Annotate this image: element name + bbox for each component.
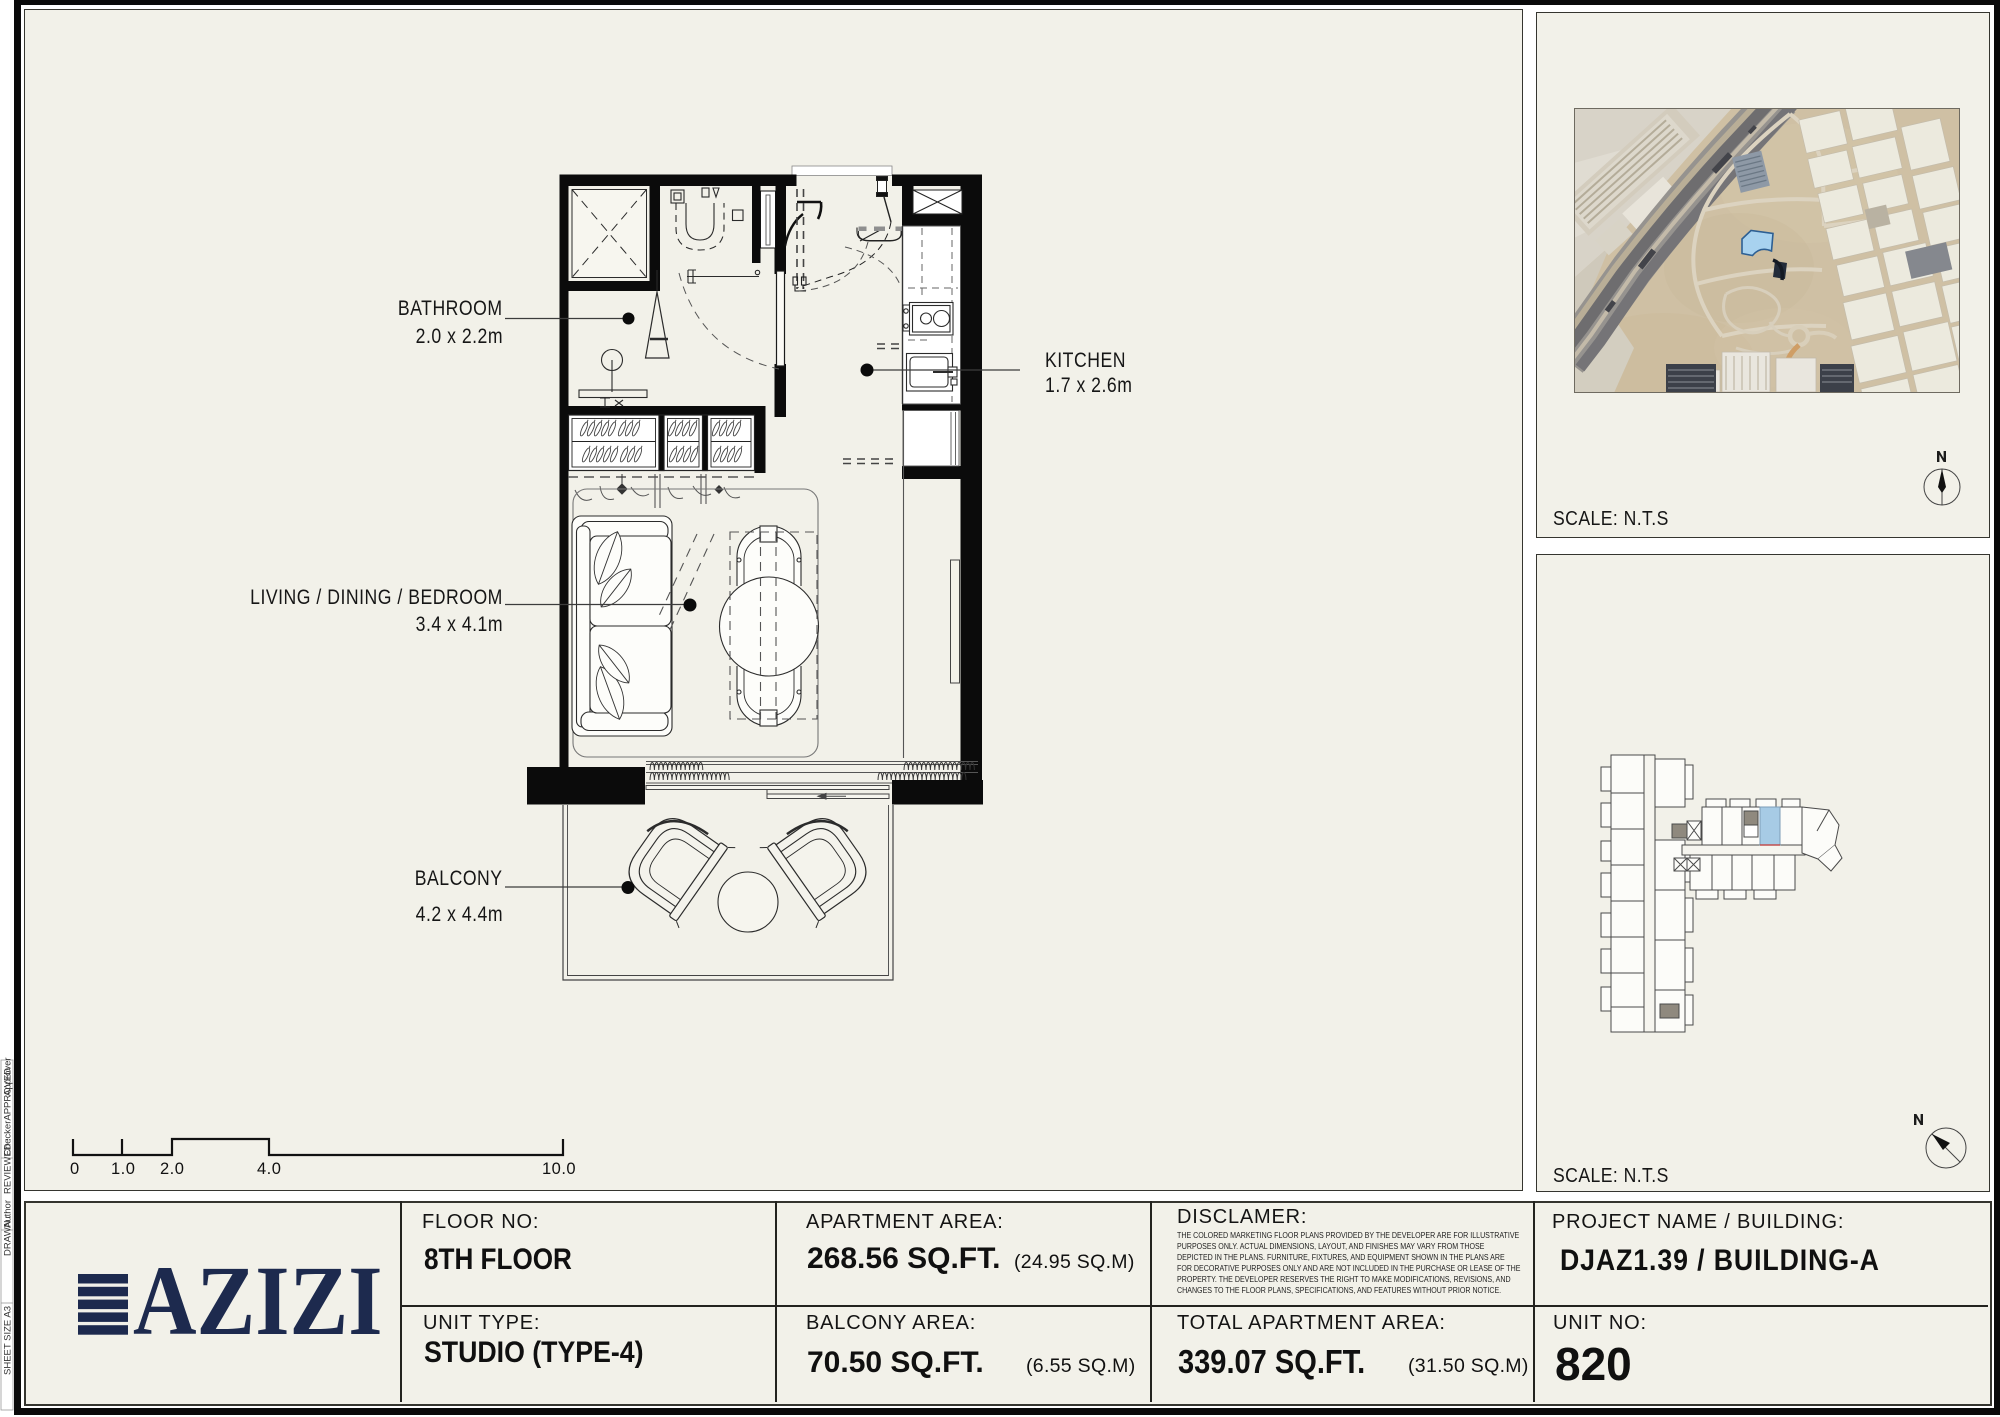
svg-text:REVIEWED :: REVIEWED :: [3, 1138, 14, 1194]
svg-text:0: 0: [70, 1160, 80, 1178]
svg-text:1.0: 1.0: [111, 1160, 135, 1178]
svg-text:4.0: 4.0: [257, 1160, 281, 1178]
svg-text:2.0: 2.0: [160, 1160, 184, 1178]
svg-text:SHEET SIZE A3: SHEET SIZE A3: [3, 1306, 14, 1375]
svg-text:10.0: 10.0: [542, 1160, 576, 1178]
svg-text:DRAWN :: DRAWN :: [3, 1215, 14, 1256]
